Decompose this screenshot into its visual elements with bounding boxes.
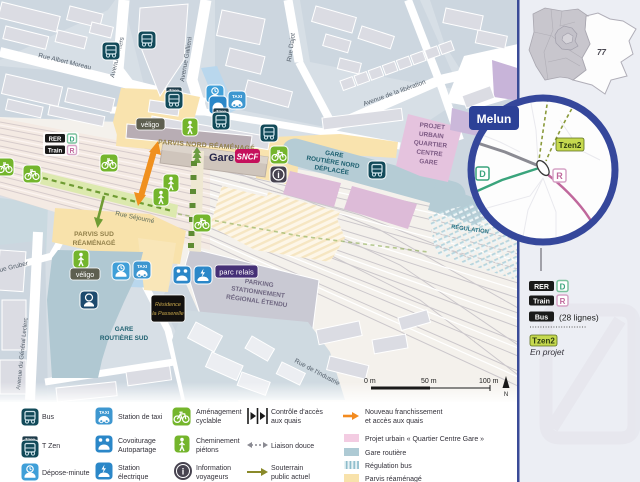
svg-text:et accès aux quais: et accès aux quais [365, 418, 423, 425]
svg-text:0 m: 0 m [364, 378, 376, 385]
svg-text:Autopartage: Autopartage [118, 447, 156, 454]
svg-text:Dépose-minute: Dépose-minute [42, 470, 90, 477]
svg-text:Tzen2: Tzen2 [559, 141, 582, 150]
svg-text:Station de taxi: Station de taxi [118, 414, 163, 421]
svg-text:voyageurs: voyageurs [196, 474, 229, 481]
svg-text:Bus: Bus [535, 315, 548, 322]
svg-text:RÉAMÉNAGÉ: RÉAMÉNAGÉ [73, 238, 116, 247]
svg-text:GARE: GARE [115, 326, 134, 333]
svg-text:Liaison douce: Liaison douce [271, 443, 314, 450]
svg-text:Régulation bus: Régulation bus [365, 463, 412, 470]
svg-text:N: N [504, 392, 508, 398]
svg-text:D: D [560, 283, 566, 292]
svg-text:100 m: 100 m [479, 378, 499, 385]
svg-text:Souterrain: Souterrain [271, 465, 303, 472]
svg-text:50 m: 50 m [421, 378, 437, 385]
svg-text:Train: Train [48, 149, 63, 155]
svg-text:R: R [556, 171, 563, 181]
svg-text:D: D [69, 137, 74, 144]
svg-text:Gare routière: Gare routière [365, 450, 406, 457]
svg-text:véligo: véligo [141, 122, 159, 129]
svg-text:PARVIS SUD: PARVIS SUD [74, 231, 114, 238]
svg-text:En projet: En projet [530, 347, 565, 357]
svg-text:véligo: véligo [76, 272, 94, 279]
svg-text:Train: Train [533, 299, 550, 306]
svg-text:Résidence: Résidence [155, 302, 181, 308]
svg-text:R: R [69, 148, 74, 155]
svg-text:la Passerelle: la Passerelle [152, 311, 184, 317]
svg-text:i: i [182, 467, 185, 477]
svg-text:D: D [479, 169, 486, 179]
svg-text:Station: Station [118, 465, 140, 472]
svg-text:Nouveau franchissement: Nouveau franchissement [365, 409, 442, 416]
svg-text:Tzen2: Tzen2 [532, 337, 555, 346]
svg-text:ROUTIÈRE SUD: ROUTIÈRE SUD [100, 333, 149, 342]
svg-text:(28 lignes): (28 lignes) [559, 313, 599, 323]
svg-text:Covoiturage: Covoiturage [118, 438, 156, 445]
svg-text:Information: Information [196, 465, 231, 472]
svg-text:cyclable: cyclable [196, 418, 221, 425]
svg-text:RER: RER [49, 137, 62, 143]
svg-text:77: 77 [597, 48, 606, 57]
svg-text:Aménagement: Aménagement [196, 409, 242, 416]
svg-text:Parvis réaménagé: Parvis réaménagé [365, 476, 422, 482]
svg-text:R: R [560, 297, 566, 306]
svg-text:Contrôle d'accès: Contrôle d'accès [271, 409, 323, 416]
svg-text:Gare: Gare [209, 152, 234, 164]
svg-text:Melun: Melun [477, 112, 512, 126]
svg-text:public actuel: public actuel [271, 474, 310, 481]
svg-text:électrique: électrique [118, 474, 148, 481]
svg-text:RER: RER [534, 284, 549, 291]
svg-text:aux quais: aux quais [271, 418, 301, 425]
svg-text:piétons: piétons [196, 447, 219, 454]
svg-text:SNCF: SNCF [237, 153, 260, 162]
svg-text:Projet urbain « Quartier Centr: Projet urbain « Quartier Centre Gare » [365, 436, 484, 443]
svg-text:T Zen: T Zen [42, 443, 60, 450]
svg-text:Cheminement: Cheminement [196, 438, 240, 445]
svg-text:parc relais: parc relais [219, 268, 254, 277]
svg-text:Bus: Bus [42, 414, 55, 421]
